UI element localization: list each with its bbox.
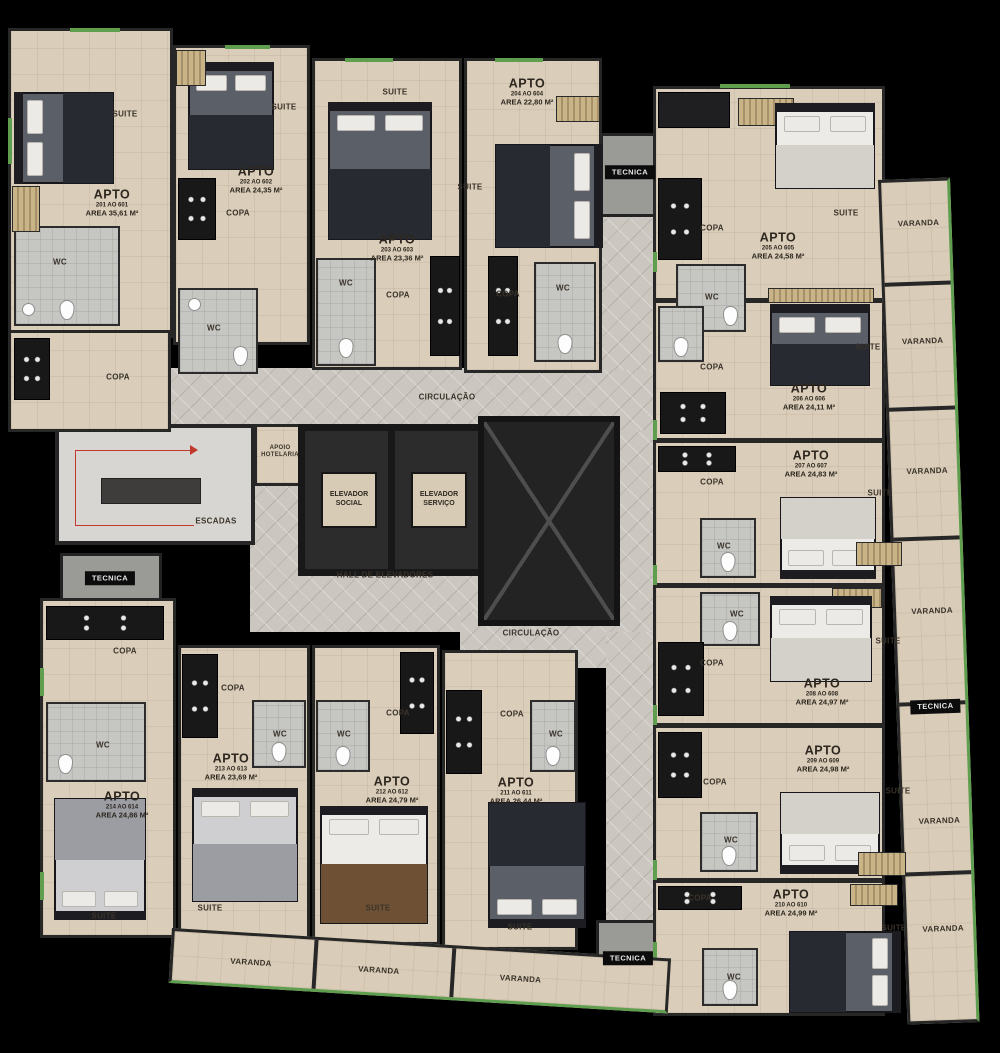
apt-209-kitchen [658,732,702,798]
apto-block-213: APTO213 AO 613AREA 23,69 M² [205,752,258,781]
varanda-label-right-5: VARANDA [919,817,961,826]
door-accent [653,252,657,272]
apto-block-202: APTO202 AO 602AREA 24,35 M² [230,165,283,194]
wc-label-201: WC [53,257,67,266]
varanda-label-bottom-3: VARANDA [500,974,542,985]
suite-label-214: SUITE [91,911,116,920]
apt-203-wc [316,258,376,366]
wall-divider [653,723,885,728]
copa-label-201: COPA [106,372,130,381]
circulacao-label-bottom: CIRCULAÇÃO [503,628,560,637]
copa-label-205: COPA [700,223,724,232]
suite-label-202: SUITE [271,102,296,111]
wall-divider [653,438,885,443]
apt-211-kitchen [446,690,482,774]
window-accent [70,28,120,32]
copa-label-208: COPA [700,658,724,667]
apt-213-kitchen [182,654,218,738]
apt-202-kitchen [178,178,216,240]
apto-block-208: APTO208 AO 608AREA 24,97 M² [796,677,849,706]
apt-211-bed [488,802,586,928]
suite-label-210: SUITE [881,923,906,932]
elevador-servico-label: ELEVADOR SERVIÇO [411,472,467,528]
copa-label-211: COPA [500,709,524,718]
apto-block-204: APTO204 AO 604AREA 22,80 M² [501,77,554,106]
window-accent [225,45,270,49]
apto-block-209: APTO209 AO 609AREA 24,98 M² [797,744,850,773]
wc-label-202: WC [207,323,221,332]
varanda-label-bottom-2: VARANDA [358,965,400,976]
elevator-servico-shaft: ELEVADOR SERVIÇO [388,424,490,576]
wc-label-208: WC [730,609,744,618]
apt-209-closet [858,852,906,876]
apto-block-210: APTO210 AO 610AREA 24,99 M² [765,888,818,917]
suite-label-204: SUITE [457,182,482,191]
service-shaft [478,416,620,626]
suite-label-205: SUITE [833,208,858,217]
elevator-social-label: ELEVADOR SOCIAL [321,472,377,528]
apt-204-bed [495,144,603,248]
apoio-hotelaria-label: APOIO HOTELARIA [257,445,303,459]
apto-block-201: APTO201 AO 601AREA 35,61 M² [86,188,139,217]
varanda-label-right-1: VARANDA [898,219,940,228]
apt-207-bed [780,497,876,579]
apt-204-kitchen [488,256,518,356]
copa-label-204: COPA [496,289,520,298]
apt-201-wc [14,226,120,326]
apt-202-closet [176,50,206,86]
window-accent [40,668,44,696]
apto-block-203: APTO203 AO 603AREA 23,36 M² [371,233,424,262]
apto-block-214: APTO214 AO 614AREA 24,86 M² [96,790,149,819]
apt-210-closet [850,884,898,906]
window-accent [8,118,12,164]
window-accent [495,58,543,62]
suite-label-203: SUITE [382,87,407,96]
door-accent [653,860,657,880]
hall-elevadores-label: HALL DE ELEVADORES [337,570,434,579]
wc-label-212: WC [337,729,351,738]
suite-label-201: SUITE [112,109,137,118]
wc-label-204: WC [556,283,570,292]
copa-label-203: COPA [386,290,410,299]
window-accent [720,84,790,88]
suite-label-207: SUITE [867,488,892,497]
wc-label-207: WC [717,541,731,550]
tecnica-label-bottom: TECNICA [603,951,653,965]
apt-201-closet [12,186,40,232]
apt-212-kitchen [400,652,434,734]
copa-label-202: COPA [226,208,250,217]
elevator-social-shaft: ELEVADOR SOCIAL [298,424,400,576]
tecnica-label-left: TECNICA [85,571,135,585]
apt-207-kitchen [658,446,736,472]
varanda-label-right-2: VARANDA [902,337,944,346]
wc-label-214: WC [96,740,110,749]
copa-label-207: COPA [700,477,724,486]
varanda-label-right-6: VARANDA [922,924,964,933]
wc-label-205: WC [705,292,719,301]
tecnica-label-right: TECNICA [910,699,961,714]
copa-label-206: COPA [700,362,724,371]
apt-206-closet [768,288,874,303]
varanda-label-bottom-1: VARANDA [230,958,272,969]
copa-label-209: COPA [703,777,727,786]
wc-label-213: WC [273,729,287,738]
door-accent [653,705,657,725]
apt-204-closet [556,96,600,122]
suite-label-209: SUITE [885,786,910,795]
stairs-room [55,424,255,545]
wc-label-209: WC [724,835,738,844]
copa-label-214: COPA [113,646,137,655]
apt-206-kitchen [660,392,726,434]
apt-214-kitchen [46,606,164,640]
suite-label-213: SUITE [197,903,222,912]
apt-210-bed [789,931,901,1013]
suite-label-212: SUITE [365,903,390,912]
escadas-label: ESCADAS [195,516,236,525]
apto-block-211: APTO211 AO 611AREA 26,44 M² [490,776,543,805]
corridor-right-top [600,215,660,370]
apto-block-207: APTO207 AO 607AREA 24,83 M² [785,449,838,478]
apto-block-205: APTO205 AO 605AREA 24,58 M² [752,231,805,260]
apt-213-bed [192,788,298,902]
apt-208-wc [700,592,760,646]
apt-203-bed [328,102,432,240]
apt-205-kitchen [658,178,702,260]
apto-block-206: APTO206 AO 606AREA 24,11 M² [783,382,835,411]
apt-201-bed [14,92,114,184]
stairs-exit-path [75,450,194,526]
copa-label-212: COPA [386,708,410,717]
copa-label-210: COPA [688,893,712,902]
suite-label-208: SUITE [875,636,900,645]
wc-label-203: WC [339,278,353,287]
suite-label-211: SUITE [507,922,532,931]
floor-plan: ESCADAS APOIO HOTELARIA ELEVADOR SOCIAL … [0,0,1000,1053]
apt-205-wardrobe [658,92,730,128]
apt-203-kitchen [430,256,460,356]
door-accent [653,565,657,585]
apt-208-bed [770,596,872,682]
tecnica-label-top: TECNICA [605,165,655,179]
suite-label-206: SUITE [855,342,880,351]
apt-206-wc [658,306,704,362]
window-accent [40,872,44,900]
wc-label-211: WC [549,729,563,738]
apt-208-kitchen [658,642,704,716]
wall-divider [653,878,885,883]
varanda-label-right-4: VARANDA [911,607,953,616]
wc-label-210: WC [727,972,741,981]
circulacao-label-top: CIRCULAÇÃO [419,392,476,401]
varanda-label-right-3: VARANDA [906,467,948,476]
door-accent [653,420,657,440]
apt-204-wc [534,262,596,362]
apt-201-kitchen [14,338,50,400]
apt-207-closet [856,542,902,566]
copa-label-213: COPA [221,683,245,692]
apt-205-bed [775,103,875,189]
window-accent [345,58,393,62]
apto-block-212: APTO212 AO 612AREA 24,79 M² [366,775,419,804]
